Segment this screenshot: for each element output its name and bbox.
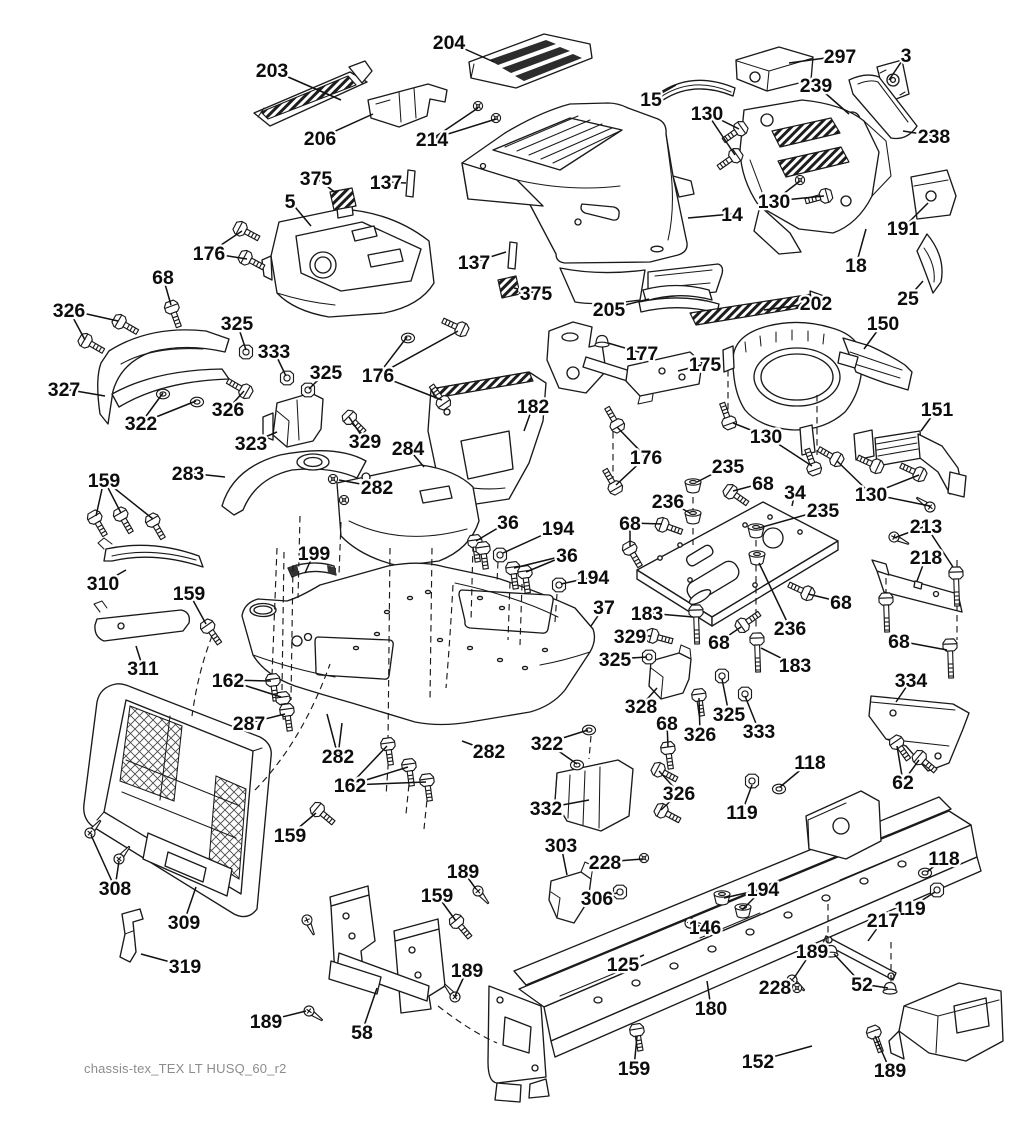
part-pad-375b xyxy=(498,276,520,298)
part-number-label: 325 xyxy=(713,704,746,726)
clip-icon xyxy=(328,474,337,483)
bolt-icon xyxy=(721,482,751,509)
part-dash-tower-18 xyxy=(740,100,891,254)
screw-icon xyxy=(441,982,462,1005)
callout-36: 36 xyxy=(476,512,519,541)
callout-323: 323 xyxy=(235,432,277,455)
part-number-label: 327 xyxy=(48,379,81,401)
callout-68: 68 xyxy=(656,713,678,747)
part-pin-137b xyxy=(508,242,517,269)
callout-375: 375 xyxy=(514,283,552,305)
part-number-label: 306 xyxy=(581,888,614,910)
part-number-label: 375 xyxy=(300,168,333,190)
bolt-icon xyxy=(308,800,338,828)
part-number-label: 68 xyxy=(152,267,174,289)
part-number-label: 333 xyxy=(258,341,291,363)
part-number-label: 183 xyxy=(631,603,664,625)
bushing-icon xyxy=(748,524,764,538)
callout-218: 218 xyxy=(910,547,943,581)
part-number-label: 68 xyxy=(708,632,730,654)
part-strip-15 xyxy=(658,80,735,100)
part-number-label: 238 xyxy=(918,126,951,148)
bolt-icon xyxy=(786,578,816,602)
part-heat-shield-323 xyxy=(263,393,323,447)
part-number-label: 118 xyxy=(794,752,826,774)
part-number-label: 319 xyxy=(169,956,202,978)
bolt-icon xyxy=(76,331,106,357)
callout-118: 118 xyxy=(780,752,826,787)
part-number-label: 303 xyxy=(545,835,578,857)
capnut-icon xyxy=(595,336,609,348)
part-number-label: 283 xyxy=(172,463,205,485)
part-number-label: 176 xyxy=(630,447,663,469)
part-number-label: 228 xyxy=(589,852,622,874)
part-number-label: 15 xyxy=(640,89,662,111)
callout-194: 194 xyxy=(561,567,609,589)
part-number-label: 236 xyxy=(652,491,685,513)
part-number-label: 329 xyxy=(614,626,647,648)
part-number-label: 325 xyxy=(599,649,632,671)
callout-303: 303 xyxy=(545,835,578,875)
part-number-label: 194 xyxy=(577,567,610,589)
bolt-icon xyxy=(629,1023,647,1052)
callout-306: 306 xyxy=(581,888,617,910)
callout-34: 34 xyxy=(784,482,806,506)
part-number-label: 375 xyxy=(520,283,553,305)
callout-326: 326 xyxy=(212,391,245,421)
callout-282: 282 xyxy=(322,714,355,768)
callout-191: 191 xyxy=(887,203,928,240)
callout-311: 311 xyxy=(127,646,159,680)
part-number-label: 37 xyxy=(593,597,615,619)
callout-328: 328 xyxy=(625,688,658,718)
part-number-label: 151 xyxy=(921,399,954,421)
bolt-icon xyxy=(419,773,437,802)
part-number-label: 177 xyxy=(626,343,659,365)
callout-287: 287 xyxy=(233,713,285,735)
part-strip-199 xyxy=(288,563,336,577)
part-number-label: 297 xyxy=(824,46,857,68)
nut-icon xyxy=(553,578,566,592)
callout-228: 228 xyxy=(589,852,642,874)
nut-icon xyxy=(240,345,253,359)
part-number-label: 239 xyxy=(800,75,833,97)
part-number-label: 228 xyxy=(759,977,792,999)
bolt-icon xyxy=(653,802,683,827)
part-number-label: 159 xyxy=(173,583,206,605)
clip-icon xyxy=(491,113,500,122)
callout-177: 177 xyxy=(608,343,658,365)
callout-189: 189 xyxy=(250,1011,306,1033)
part-number-label: 329 xyxy=(349,431,382,453)
part-number-label: 183 xyxy=(779,655,812,677)
part-number-label: 3 xyxy=(901,45,912,67)
bolt-icon xyxy=(143,511,169,541)
callout-189: 189 xyxy=(451,960,484,996)
part-strip-205 xyxy=(639,286,719,314)
part-number-label: 162 xyxy=(212,670,245,692)
callout-68: 68 xyxy=(619,513,662,546)
callout-125: 125 xyxy=(607,954,644,976)
part-number-label: 189 xyxy=(250,1011,283,1033)
drawing-reference-code: chassis-tex_TEX LT HUSQ_60_r2 xyxy=(84,1061,287,1076)
part-number-label: 36 xyxy=(497,512,519,534)
part-number-label: 146 xyxy=(689,917,722,939)
part-number-label: 205 xyxy=(593,299,626,321)
part-bracket-319 xyxy=(120,909,143,962)
callout-68: 68 xyxy=(708,627,741,654)
bolt-icon xyxy=(654,516,684,538)
bushing-icon xyxy=(749,551,765,565)
part-trim-310 xyxy=(98,538,203,567)
part-number-label: 118 xyxy=(928,848,960,870)
callout-333: 333 xyxy=(743,696,776,743)
callout-152: 152 xyxy=(742,1046,812,1073)
bolt-icon xyxy=(601,404,627,434)
screw-icon xyxy=(302,1004,325,1024)
part-number-label: 25 xyxy=(897,288,919,310)
callout-58: 58 xyxy=(351,988,377,1044)
callout-118: 118 xyxy=(927,848,960,872)
part-number-label: 284 xyxy=(392,438,425,460)
callout-119: 119 xyxy=(726,785,758,824)
part-trim-311 xyxy=(94,601,189,641)
part-number-label: 130 xyxy=(758,191,791,213)
part-number-label: 130 xyxy=(691,103,724,125)
part-number-label: 180 xyxy=(695,998,728,1020)
part-dash-5 xyxy=(262,205,434,317)
clip-icon xyxy=(473,101,482,110)
part-number-label: 203 xyxy=(256,60,289,82)
part-shield-332 xyxy=(555,760,633,831)
part-plate-191 xyxy=(911,170,956,219)
callout-37: 37 xyxy=(591,597,615,626)
callout-319: 319 xyxy=(141,954,201,978)
callout-159: 159 xyxy=(88,470,153,519)
part-number-label: 175 xyxy=(689,354,722,376)
callout-310: 310 xyxy=(87,570,126,595)
callout-68: 68 xyxy=(152,267,174,305)
callout-284: 284 xyxy=(392,438,425,467)
bolt-icon xyxy=(715,146,745,173)
part-number-label: 137 xyxy=(370,172,403,194)
part-number-label: 217 xyxy=(867,910,900,932)
part-number-label: 14 xyxy=(721,204,743,226)
part-console-284 xyxy=(337,465,479,566)
bolt-icon xyxy=(198,617,225,647)
callout-217: 217 xyxy=(867,910,900,941)
callout-159: 159 xyxy=(618,1036,651,1080)
part-number-label: 68 xyxy=(619,513,641,535)
clip-icon xyxy=(339,495,348,504)
part-hood-14 xyxy=(462,103,694,263)
part-number-label: 152 xyxy=(742,1051,775,1073)
part-number-label: 176 xyxy=(362,365,395,387)
callout-130: 130 xyxy=(691,103,739,155)
screw-icon xyxy=(300,913,318,936)
callout-176: 176 xyxy=(616,427,662,485)
part-number-label: 18 xyxy=(845,255,867,277)
part-number-label: 325 xyxy=(221,313,254,335)
callout-325: 325 xyxy=(599,649,647,671)
part-number-label: 236 xyxy=(774,618,807,640)
callout-375: 375 xyxy=(300,168,336,193)
part-number-label: 130 xyxy=(750,426,783,448)
bushing-icon xyxy=(735,904,751,918)
part-bracket-206 xyxy=(368,84,447,127)
part-number-label: 125 xyxy=(607,954,640,976)
part-number-label: 308 xyxy=(99,878,132,900)
part-number-label: 282 xyxy=(322,746,355,768)
screw-icon xyxy=(112,844,133,867)
callout-309: 309 xyxy=(168,887,201,934)
bolt-icon xyxy=(650,761,680,786)
part-number-label: 137 xyxy=(458,252,491,274)
part-number-label: 213 xyxy=(910,516,943,538)
part-number-label: 191 xyxy=(887,218,920,240)
part-number-label: 199 xyxy=(298,543,331,565)
part-number-label: 189 xyxy=(874,1060,907,1082)
part-vent-204 xyxy=(469,34,592,88)
part-number-label: 218 xyxy=(910,547,943,569)
clip-icon xyxy=(792,983,801,992)
assembly-dash-lines xyxy=(192,370,957,1043)
part-number-label: 68 xyxy=(830,592,852,614)
bolt-icon xyxy=(163,299,185,329)
part-number-label: 194 xyxy=(747,879,780,901)
part-number-label: 176 xyxy=(193,243,226,265)
callout-137: 137 xyxy=(458,252,506,274)
callout-68: 68 xyxy=(808,592,852,614)
callout-137: 137 xyxy=(370,172,406,194)
callout-159: 159 xyxy=(421,885,456,921)
part-number-label: 311 xyxy=(127,658,159,680)
callout-325: 325 xyxy=(713,679,746,726)
parts-diagram-canvas: 2032042062142973152391302381301419118253… xyxy=(0,0,1024,1127)
part-number-label: 282 xyxy=(361,477,394,499)
part-number-label: 62 xyxy=(892,772,914,794)
callout-334: 334 xyxy=(895,670,928,702)
washer-icon xyxy=(583,725,596,735)
part-skid-plate-152 xyxy=(889,983,1003,1061)
part-number-label: 5 xyxy=(285,191,296,213)
part-number-label: 159 xyxy=(421,885,454,907)
callout-183: 183 xyxy=(761,648,811,677)
bolt-icon xyxy=(447,912,475,942)
part-number-label: 52 xyxy=(851,974,873,996)
callout-325: 325 xyxy=(309,362,342,389)
callout-204: 204 xyxy=(433,32,494,62)
bolt-icon xyxy=(85,508,111,538)
callout-151: 151 xyxy=(921,399,954,431)
part-number-label: 159 xyxy=(274,825,307,847)
callout-150: 150 xyxy=(864,313,899,349)
callout-228: 228 xyxy=(759,977,793,999)
callout-235: 235 xyxy=(697,456,744,482)
part-number-label: 119 xyxy=(726,802,758,824)
part-bracket-175-177 xyxy=(547,322,702,404)
part-number-label: 36 xyxy=(556,545,578,567)
callout-14: 14 xyxy=(688,204,743,226)
callout-327: 327 xyxy=(48,379,105,401)
callout-206: 206 xyxy=(304,114,373,150)
part-number-label: 202 xyxy=(800,293,833,315)
part-number-label: 68 xyxy=(888,631,910,653)
part-number-label: 159 xyxy=(618,1058,651,1080)
part-number-label: 328 xyxy=(625,696,658,718)
callout-283: 283 xyxy=(172,463,225,485)
callout-322: 322 xyxy=(125,393,196,435)
callout-68: 68 xyxy=(888,631,947,653)
part-shield-327 xyxy=(98,330,229,424)
part-number-label: 189 xyxy=(796,941,829,963)
bolt-icon xyxy=(111,505,137,535)
part-number-label: 326 xyxy=(53,300,86,322)
part-fender-deck-37 xyxy=(242,563,594,724)
longbolt-icon xyxy=(943,639,958,678)
callout-322: 322 xyxy=(531,730,588,764)
part-number-label: 326 xyxy=(663,783,696,805)
part-number-label: 189 xyxy=(451,960,484,982)
part-number-label: 326 xyxy=(684,724,717,746)
callout-329: 329 xyxy=(614,626,651,648)
part-number-label: 333 xyxy=(743,721,776,743)
part-number-label: 287 xyxy=(233,713,266,735)
bolt-icon xyxy=(716,401,738,431)
callout-159: 159 xyxy=(274,813,316,847)
bolt-icon xyxy=(110,312,140,338)
part-number-label: 150 xyxy=(867,313,900,335)
part-number-label: 326 xyxy=(212,399,245,421)
part-number-label: 206 xyxy=(304,128,337,150)
part-number-label: 235 xyxy=(712,456,745,478)
part-number-label: 309 xyxy=(168,912,201,934)
washer-icon xyxy=(773,784,786,794)
part-number-label: 189 xyxy=(447,861,480,883)
part-number-label: 282 xyxy=(473,741,506,763)
part-number-label: 182 xyxy=(517,396,550,418)
nut-icon xyxy=(281,371,294,385)
callout-146: 146 xyxy=(689,917,722,939)
part-number-label: 159 xyxy=(88,470,121,492)
longbolt-icon xyxy=(750,633,765,672)
part-number-label: 310 xyxy=(87,573,120,595)
part-number-label: 204 xyxy=(433,32,466,54)
callout-18: 18 xyxy=(845,229,867,277)
nut-icon xyxy=(931,883,944,897)
bolt-icon xyxy=(733,608,763,635)
part-number-label: 58 xyxy=(351,1022,373,1044)
nut-icon xyxy=(494,548,507,562)
bolt-icon xyxy=(620,539,646,569)
bolt-icon xyxy=(440,314,470,338)
part-number-label: 194 xyxy=(542,518,575,540)
longbolt-icon xyxy=(879,593,894,632)
part-number-label: 322 xyxy=(125,413,158,435)
part-number-label: 322 xyxy=(531,733,564,755)
clip-icon xyxy=(639,853,648,862)
bolt-icon xyxy=(279,703,297,732)
callout-25: 25 xyxy=(897,281,923,310)
part-number-label: 332 xyxy=(530,798,563,820)
part-number-label: 68 xyxy=(752,473,774,495)
part-number-label: 235 xyxy=(807,500,840,522)
part-number-label: 334 xyxy=(895,670,928,692)
part-number-label: 34 xyxy=(784,482,806,504)
part-number-label: 323 xyxy=(235,433,268,455)
callout-282: 282 xyxy=(462,741,505,763)
bolt-icon xyxy=(898,459,928,483)
part-number-label: 68 xyxy=(656,713,678,735)
nut-icon xyxy=(739,687,752,701)
part-number-label: 325 xyxy=(310,362,343,384)
longbolt-icon xyxy=(689,605,704,644)
bolt-icon xyxy=(232,220,262,245)
part-number-label: 130 xyxy=(855,484,888,506)
nut-icon xyxy=(614,885,627,899)
bolt-icon xyxy=(644,627,674,648)
callout-236: 236 xyxy=(652,491,690,513)
part-number-label: 162 xyxy=(334,775,367,797)
part-number-label: 214 xyxy=(416,129,449,151)
part-pin-137a xyxy=(406,170,415,197)
callout-189: 189 xyxy=(794,941,828,978)
